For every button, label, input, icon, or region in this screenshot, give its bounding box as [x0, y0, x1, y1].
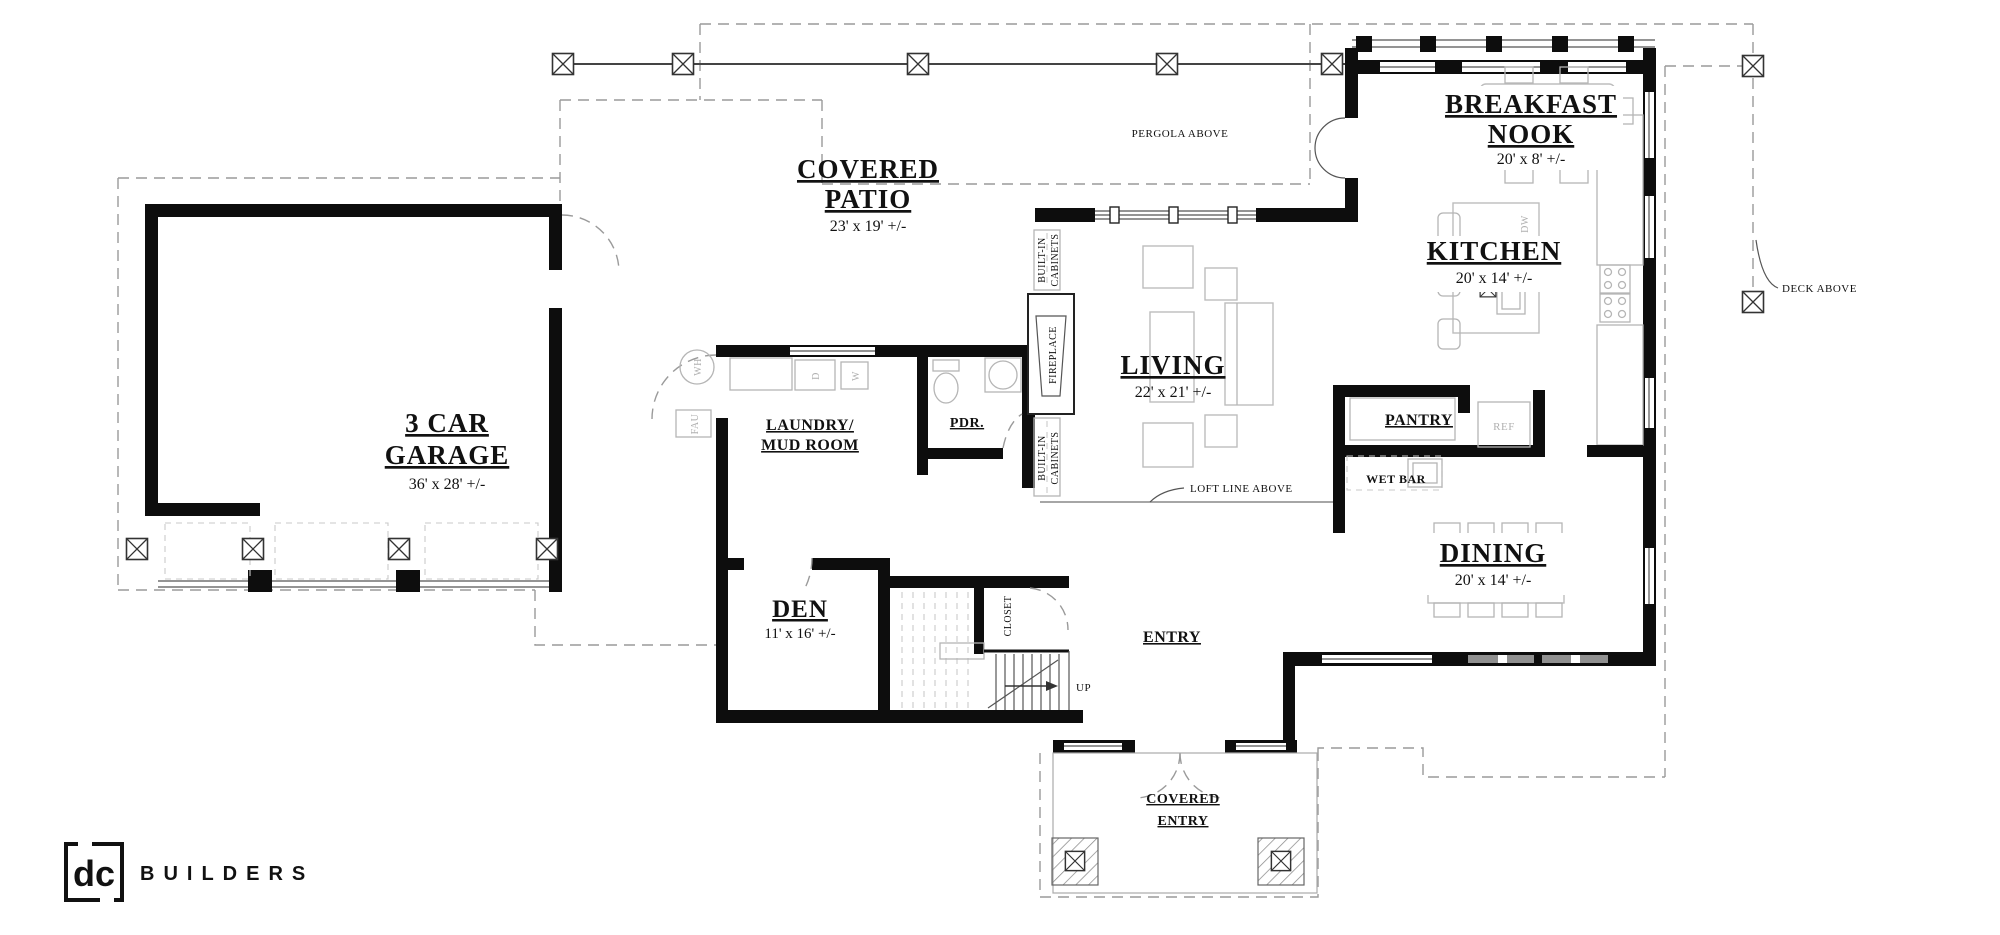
den-label: DEN	[772, 596, 828, 623]
garage-walls	[145, 204, 562, 592]
floor-plan-canvas: 3 CAR GARAGE 36' x 28' +/- COVERED PATIO…	[0, 0, 2000, 935]
column-marker-icon	[127, 539, 148, 560]
staircase	[902, 592, 1069, 710]
built-in-label-bottom-2: CABINETS	[1050, 432, 1061, 485]
living-label: LIVING	[1120, 350, 1225, 380]
garage-label-line2: GARAGE	[385, 440, 510, 470]
washer-label: W	[851, 371, 862, 381]
dining-walls	[1283, 652, 1655, 753]
column-marker-icon	[1743, 56, 1764, 77]
column-marker-icon	[1271, 851, 1290, 870]
deck-above-label: DECK ABOVE	[1782, 283, 1857, 295]
logo-frame-gap-bottom	[100, 896, 114, 904]
closet-label: CLOSET	[1003, 596, 1014, 637]
column-marker-icon	[1322, 54, 1343, 75]
powder-label: PDR.	[950, 416, 984, 431]
covered-patio-label-line2: PATIO	[825, 184, 912, 214]
covered-patio-dims: 23' x 19' +/-	[830, 218, 907, 235]
living-dims: 22' x 21' +/-	[1135, 384, 1212, 401]
column-marker-icon	[1743, 292, 1764, 313]
column-markers	[127, 54, 1764, 871]
column-marker-icon	[553, 54, 574, 75]
loft-line-above-label: LOFT LINE ABOVE	[1190, 483, 1293, 495]
kitchen-dims: 20' x 14' +/-	[1456, 270, 1533, 287]
water-heater-label: WH	[693, 358, 704, 376]
logo-frame-gap-top	[78, 840, 92, 848]
breakfast-nook-label-line1: BREAKFAST	[1445, 89, 1617, 119]
loft-line	[1040, 488, 1338, 502]
built-in-label-top-2: CABINETS	[1050, 234, 1061, 287]
fixture-labels: D W DW REF WH FAU	[690, 215, 1531, 434]
column-marker-icon	[1157, 54, 1178, 75]
dryer-label: D	[811, 372, 822, 380]
garage-label-line1: 3 CAR	[405, 408, 489, 438]
built-in-label-top-1: BUILT-IN	[1037, 237, 1048, 282]
up-label: UP	[1076, 682, 1091, 694]
covered-entry-label-line2: ENTRY	[1157, 814, 1208, 829]
breakfast-nook-dims: 20' x 8' +/-	[1497, 151, 1566, 168]
french-door-swings	[1315, 118, 1345, 178]
column-marker-icon	[243, 539, 264, 560]
refrigerator-label: REF	[1493, 421, 1515, 433]
dining-dims: 20' x 14' +/-	[1455, 572, 1532, 589]
deck-leader-line	[1756, 240, 1778, 288]
column-marker-icon	[673, 54, 694, 75]
laundry-fixtures	[730, 358, 868, 390]
kitchen-label: KITCHEN	[1427, 236, 1562, 266]
covered-entry-label-line1: COVERED	[1146, 792, 1220, 807]
garage-to-patio-door-swing	[562, 215, 619, 272]
powder-door-swing	[1003, 414, 1022, 448]
closet-door-swing	[1030, 588, 1068, 630]
laundry-label-line2: MUD ROOM	[761, 437, 859, 454]
garage-door-bays	[165, 523, 538, 579]
laundry-label-line1: LAUNDRY/	[766, 417, 854, 434]
garage-dims: 36' x 28' +/-	[409, 476, 486, 493]
column-marker-icon	[389, 539, 410, 560]
built-in-label-bottom-1: BUILT-IN	[1037, 435, 1048, 480]
fireplace-label: FIREPLACE	[1048, 326, 1059, 384]
floor-plan-drawing: 3 CAR GARAGE 36' x 28' +/- COVERED PATIO…	[0, 0, 2000, 935]
pantry-label: PANTRY	[1385, 412, 1453, 429]
logo-company-name: BUILDERS	[140, 863, 314, 885]
dishwasher-label: DW	[1520, 215, 1531, 233]
dining-label: DINING	[1440, 538, 1547, 568]
covered-patio-label-line1: COVERED	[797, 154, 939, 184]
column-marker-icon	[537, 539, 558, 560]
column-marker-icon	[908, 54, 929, 75]
den-dims: 11' x 16' +/-	[764, 626, 835, 642]
pergola-above-label: PERGOLA ABOVE	[1132, 128, 1229, 140]
patio-pergola-beam-lines	[560, 36, 1655, 64]
powder-fixtures	[933, 358, 1021, 403]
furnace-label: FAU	[690, 413, 701, 434]
wet-bar-label: WET BAR	[1366, 472, 1426, 486]
breakfast-nook-label-line2: NOOK	[1488, 119, 1575, 149]
logo-monogram: dc	[73, 853, 115, 894]
column-marker-icon	[1065, 851, 1084, 870]
living-walls	[1035, 207, 1347, 223]
entry-walls	[1053, 740, 1297, 798]
dc-builders-logo: dc BUILDERS	[66, 840, 314, 904]
entry-label: ENTRY	[1143, 629, 1201, 646]
